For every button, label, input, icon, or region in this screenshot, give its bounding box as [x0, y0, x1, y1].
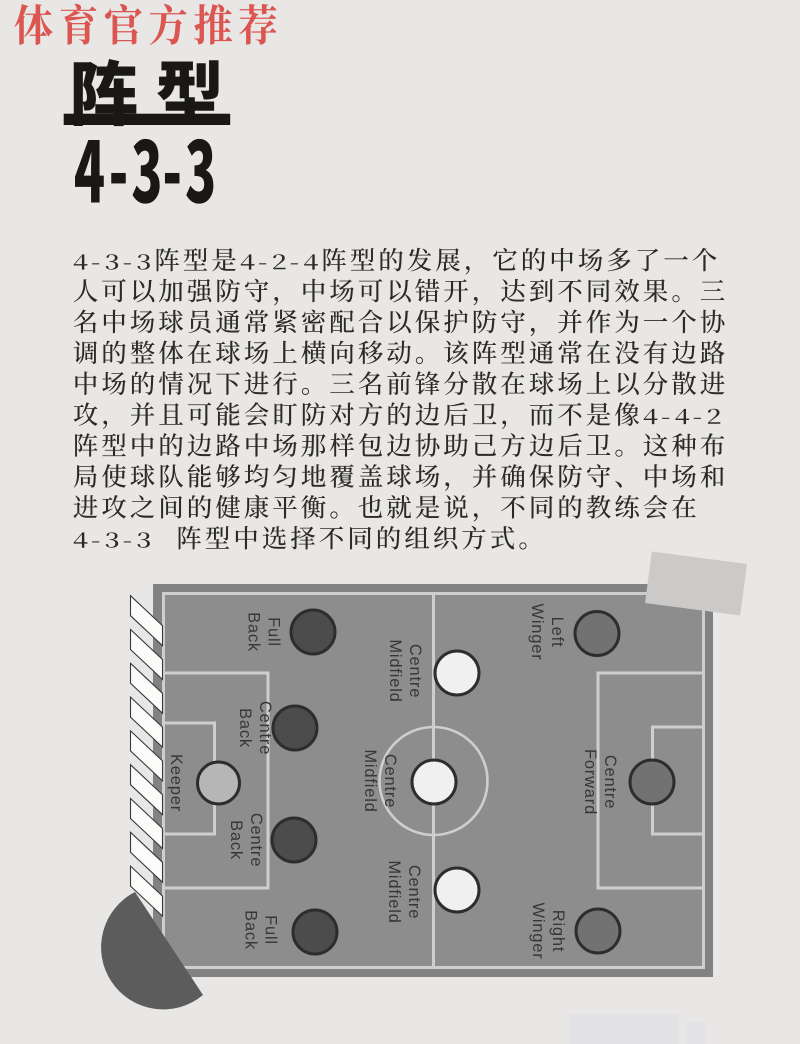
svg-text:Keeper: Keeper	[167, 754, 185, 812]
svg-text:Left: Left	[548, 617, 566, 648]
svg-text:Centre: Centre	[256, 701, 274, 755]
svg-text:Centre: Centre	[381, 754, 399, 808]
svg-text:Full: Full	[262, 915, 280, 945]
svg-text:Right: Right	[549, 910, 567, 953]
svg-text:Midfield: Midfield	[385, 860, 403, 923]
svg-text:Midfield: Midfield	[361, 749, 379, 812]
svg-text:Back: Back	[245, 612, 263, 652]
svg-text:Winger: Winger	[528, 603, 546, 660]
svg-text:Back: Back	[242, 910, 260, 950]
svg-text:Centre: Centre	[247, 813, 265, 867]
svg-text:Centre: Centre	[405, 865, 423, 919]
svg-text:Forward: Forward	[581, 749, 599, 815]
svg-text:Back: Back	[236, 708, 254, 748]
svg-text:Back: Back	[227, 820, 245, 860]
svg-text:Centre: Centre	[601, 755, 619, 809]
svg-text:Midfield: Midfield	[386, 639, 404, 702]
svg-text:Full: Full	[265, 617, 283, 647]
svg-text:Winger: Winger	[529, 902, 547, 959]
svg-text:Centre: Centre	[406, 644, 424, 698]
